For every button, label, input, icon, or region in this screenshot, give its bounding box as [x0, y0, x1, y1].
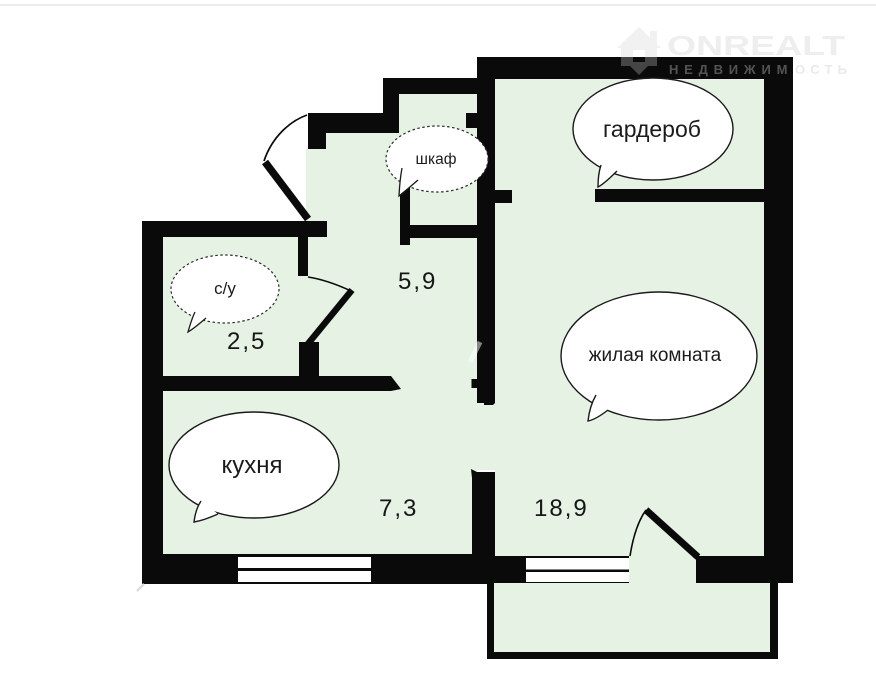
- svg-text:2,5: 2,5: [227, 328, 266, 355]
- svg-text:18,9: 18,9: [534, 495, 589, 522]
- svg-text:5,9: 5,9: [398, 268, 437, 295]
- svg-text:ONREALT: ONREALT: [667, 30, 845, 61]
- svg-text:7,3: 7,3: [379, 495, 418, 522]
- svg-text:с/у: с/у: [214, 279, 236, 298]
- svg-text:кухня: кухня: [221, 452, 282, 479]
- svg-text:жилая комната: жилая комната: [589, 345, 722, 366]
- svg-text:гардероб: гардероб: [603, 116, 701, 142]
- svg-text:шкаф: шкаф: [416, 151, 457, 168]
